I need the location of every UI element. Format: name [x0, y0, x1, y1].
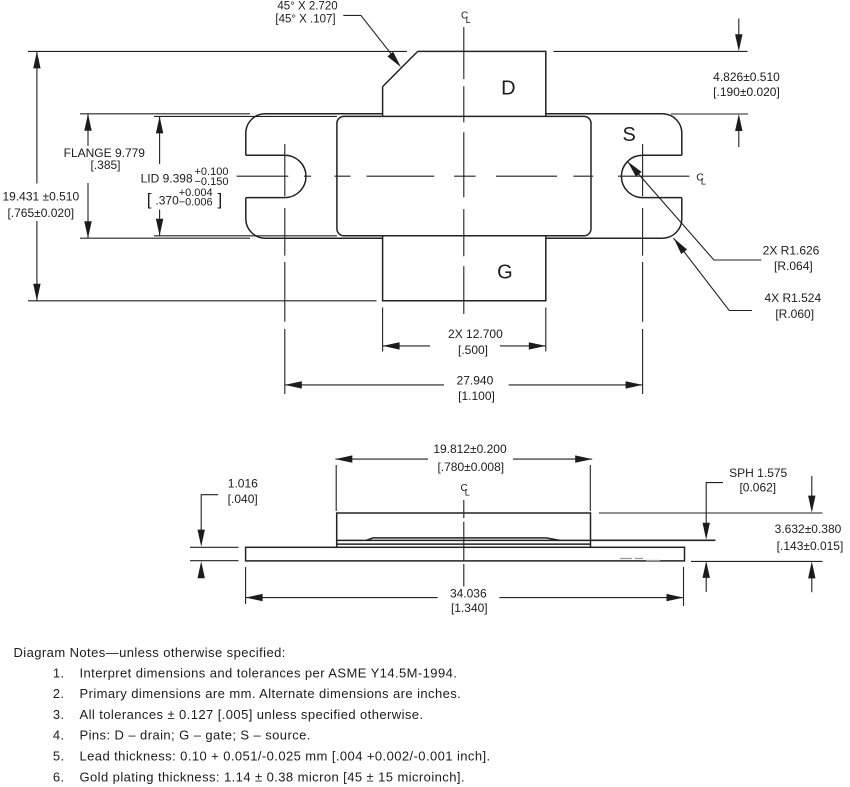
svg-text:[1.340]: [1.340]: [451, 601, 488, 615]
svg-text:27.940: 27.940: [457, 374, 494, 388]
svg-text:4.: 4.: [53, 728, 65, 743]
svg-text:G: G: [497, 262, 513, 284]
svg-text:[0.062]: [0.062]: [739, 480, 776, 494]
svg-text:[R.060]: [R.060]: [775, 307, 814, 321]
svg-text:Interpret dimensions and toler: Interpret dimensions and tolerances per …: [80, 665, 458, 680]
svg-text:L: L: [701, 176, 706, 187]
svg-text:[: [: [147, 190, 152, 209]
svg-text:1.: 1.: [53, 665, 65, 680]
svg-text:3.632±0.380: 3.632±0.380: [775, 522, 842, 536]
svg-text:Pins: D – drain; G – gate; S –: Pins: D – drain; G – gate; S – source.: [80, 728, 311, 743]
svg-text:D: D: [501, 78, 515, 100]
svg-text:L: L: [465, 488, 470, 498]
svg-text:[.765±0.020]: [.765±0.020]: [7, 206, 74, 220]
svg-text:19.812±0.200: 19.812±0.200: [433, 442, 507, 456]
svg-text:[.385]: [.385]: [90, 158, 120, 172]
svg-text:.370: .370: [155, 193, 179, 207]
svg-text:[.190±0.020]: [.190±0.020]: [713, 85, 780, 99]
svg-text:Gold plating thickness: 1.14 ±: Gold plating thickness: 1.14 ± 0.38 micr…: [80, 769, 465, 784]
svg-text:1.016: 1.016: [228, 477, 258, 491]
svg-text:Primary dimensions are mm. Alt: Primary dimensions are mm. Alternate dim…: [80, 686, 462, 701]
svg-text:−0.006: −0.006: [179, 196, 213, 208]
svg-text:45° X 2.720: 45° X 2.720: [277, 1, 337, 13]
svg-text:2X 12.700: 2X 12.700: [448, 327, 503, 341]
svg-text:[.143±0.015]: [.143±0.015]: [777, 539, 844, 553]
svg-text:[45° X .107]: [45° X .107]: [275, 14, 335, 26]
svg-text:[1.100]: [1.100]: [458, 389, 495, 403]
svg-text:19.431 ±0.510: 19.431 ±0.510: [2, 190, 79, 204]
svg-text:[.040]: [.040]: [228, 492, 258, 506]
svg-text:4.826±0.510: 4.826±0.510: [713, 70, 780, 84]
svg-text:Lead thickness: 0.10 + 0.051/-: Lead thickness: 0.10 + 0.051/-0.025 mm […: [80, 749, 491, 764]
svg-text:L: L: [466, 15, 471, 25]
svg-text:6.: 6.: [53, 769, 65, 784]
svg-text:2X R1.626: 2X R1.626: [763, 244, 820, 258]
svg-text:34.036: 34.036: [450, 586, 487, 600]
svg-text:[R.064]: [R.064]: [774, 259, 813, 273]
svg-text:[.500]: [.500]: [458, 343, 488, 357]
svg-text:LID 9.398: LID 9.398: [141, 172, 193, 186]
svg-text:Diagram Notes—unless otherwise: Diagram Notes—unless otherwise specified…: [14, 645, 286, 660]
svg-text:[.780±0.008]: [.780±0.008]: [437, 460, 504, 474]
svg-text:All tolerances ± 0.127 [.005]: All tolerances ± 0.127 [.005] unless spe…: [80, 707, 424, 722]
svg-text:2.: 2.: [53, 686, 65, 701]
svg-text:S: S: [623, 124, 636, 146]
svg-text:4X R1.524: 4X R1.524: [764, 291, 821, 305]
svg-text:SPH 1.575: SPH 1.575: [729, 466, 787, 480]
svg-text:]: ]: [218, 190, 223, 209]
svg-text:3.: 3.: [53, 707, 65, 722]
svg-text:5.: 5.: [53, 749, 65, 764]
